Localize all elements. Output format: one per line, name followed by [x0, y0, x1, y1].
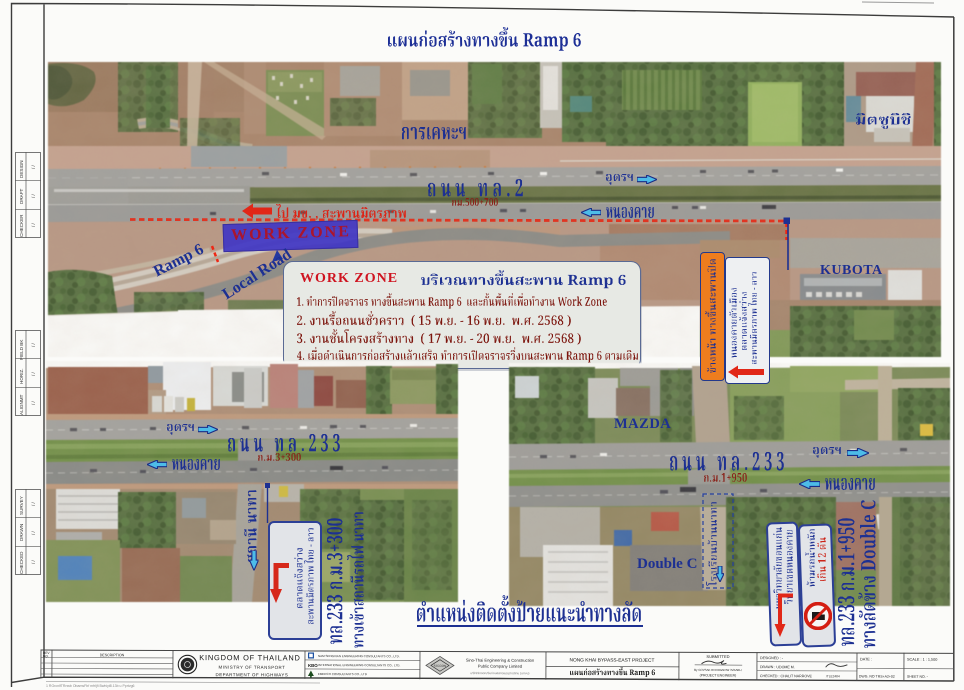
svg-text:KINGDOM OF THAILAND: KINGDOM OF THAILAND	[199, 653, 300, 662]
svg-text:MINISTRY OF TRANSPORT: MINISTRY OF TRANSPORT	[219, 665, 286, 670]
svg-text:EMERCH CONSULTANTS CO., LTD: EMERCH CONSULTANTS CO., LTD	[318, 672, 368, 676]
svg-text:DATE :: DATE :	[860, 658, 872, 662]
svg-text:NAM SENGVIAN ENGINEERING CONSU: NAM SENGVIAN ENGINEERING CONSULTANTS CO.…	[318, 654, 400, 658]
svg-text:/TLE2484: /TLE2484	[826, 674, 840, 678]
svg-text:Sino-Thai Engineering & Constr: Sino-Thai Engineering & Construction	[466, 658, 535, 663]
svg-text:SUBMITTED: SUBMITTED	[706, 654, 729, 659]
svg-text:SHEET NO. -: SHEET NO. -	[907, 675, 929, 679]
svg-text:NONG KHAI BYPASS-EAST PROJECT: NONG KHAI BYPASS-EAST PROJECT	[570, 657, 655, 663]
svg-text:KBO: KBO	[308, 663, 318, 668]
svg-text:DRAWN : UDOME M.: DRAWN : UDOME M.	[760, 665, 795, 669]
svg-text:By GOVSAK ROOHGNOW /S/KAEL/: By GOVSAK ROOHGNOW /S/KAEL/	[694, 668, 742, 672]
svg-text:uSNnlnooruSuriouaanoiuazriodוn: uSNnlnooruSuriouaanoiuazriodוnu (ưnvu)	[470, 671, 529, 675]
svg-text:CHECKED : CHALIT NARROVE: CHECKED : CHALIT NARROVE	[760, 674, 813, 678]
svg-text:(PROJECT ENGINEER): (PROJECT ENGINEER)	[700, 673, 737, 677]
svg-text:DESCRIPTION: DESCRIPTION	[100, 653, 125, 657]
svg-text:Public Company Limited: Public Company Limited	[478, 664, 523, 669]
svg-text:STECON: STECON	[434, 664, 447, 668]
svg-text:SCALE : 1 : 1,500: SCALE : 1 : 1,500	[907, 658, 937, 662]
svg-text:DESIGNED : -: DESIGNED : -	[760, 656, 784, 660]
svg-text:NO.: NO.	[43, 654, 49, 658]
svg-text:INTERNATIONAL ENGINEERING CONS: INTERNATIONAL ENGINEERING CONSULTANTS CO…	[318, 663, 401, 667]
svg-text:DEPARTMENT OF HIGHWAYS: DEPARTMENT OF HIGHWAYS	[216, 672, 289, 677]
svg-text:DWG. NO TRS+A2+02: DWG. NO TRS+A2+02	[859, 674, 895, 678]
